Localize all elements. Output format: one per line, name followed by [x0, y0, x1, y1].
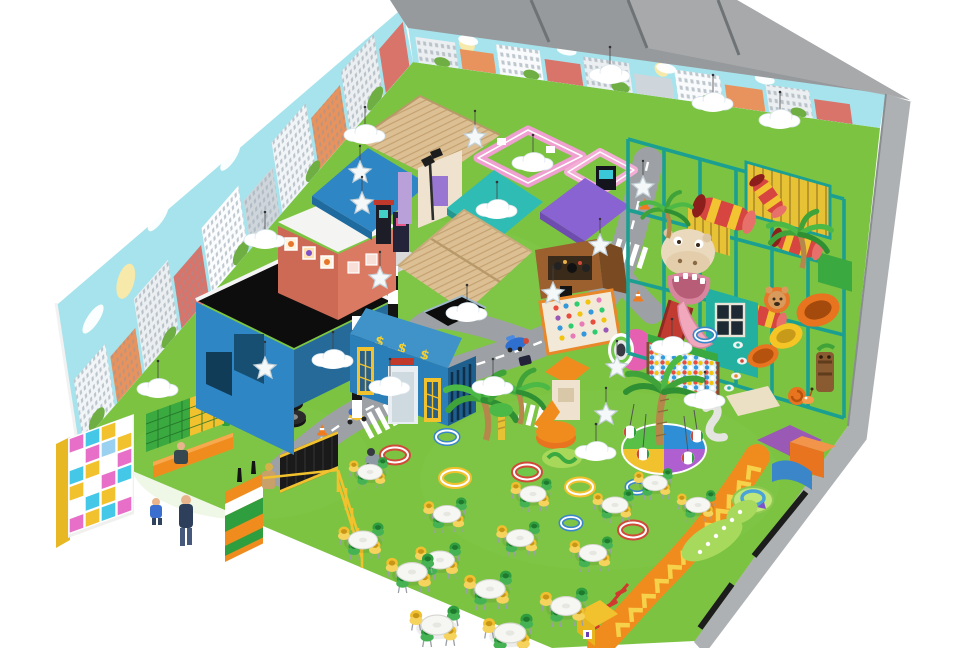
tiki-totem — [816, 345, 834, 392]
table-set — [410, 606, 461, 647]
kiosk-post — [398, 172, 412, 224]
bank-window — [424, 378, 441, 422]
playground-render: $ $ $ — [0, 0, 972, 648]
staff-member — [265, 463, 273, 471]
visitor-child — [150, 498, 162, 525]
bear-figure — [764, 287, 790, 314]
cubby-shelf — [56, 414, 134, 548]
scene-canvas: $ $ $ — [0, 0, 972, 648]
play-ring — [514, 465, 540, 480]
bank-door-sign — [390, 358, 414, 365]
